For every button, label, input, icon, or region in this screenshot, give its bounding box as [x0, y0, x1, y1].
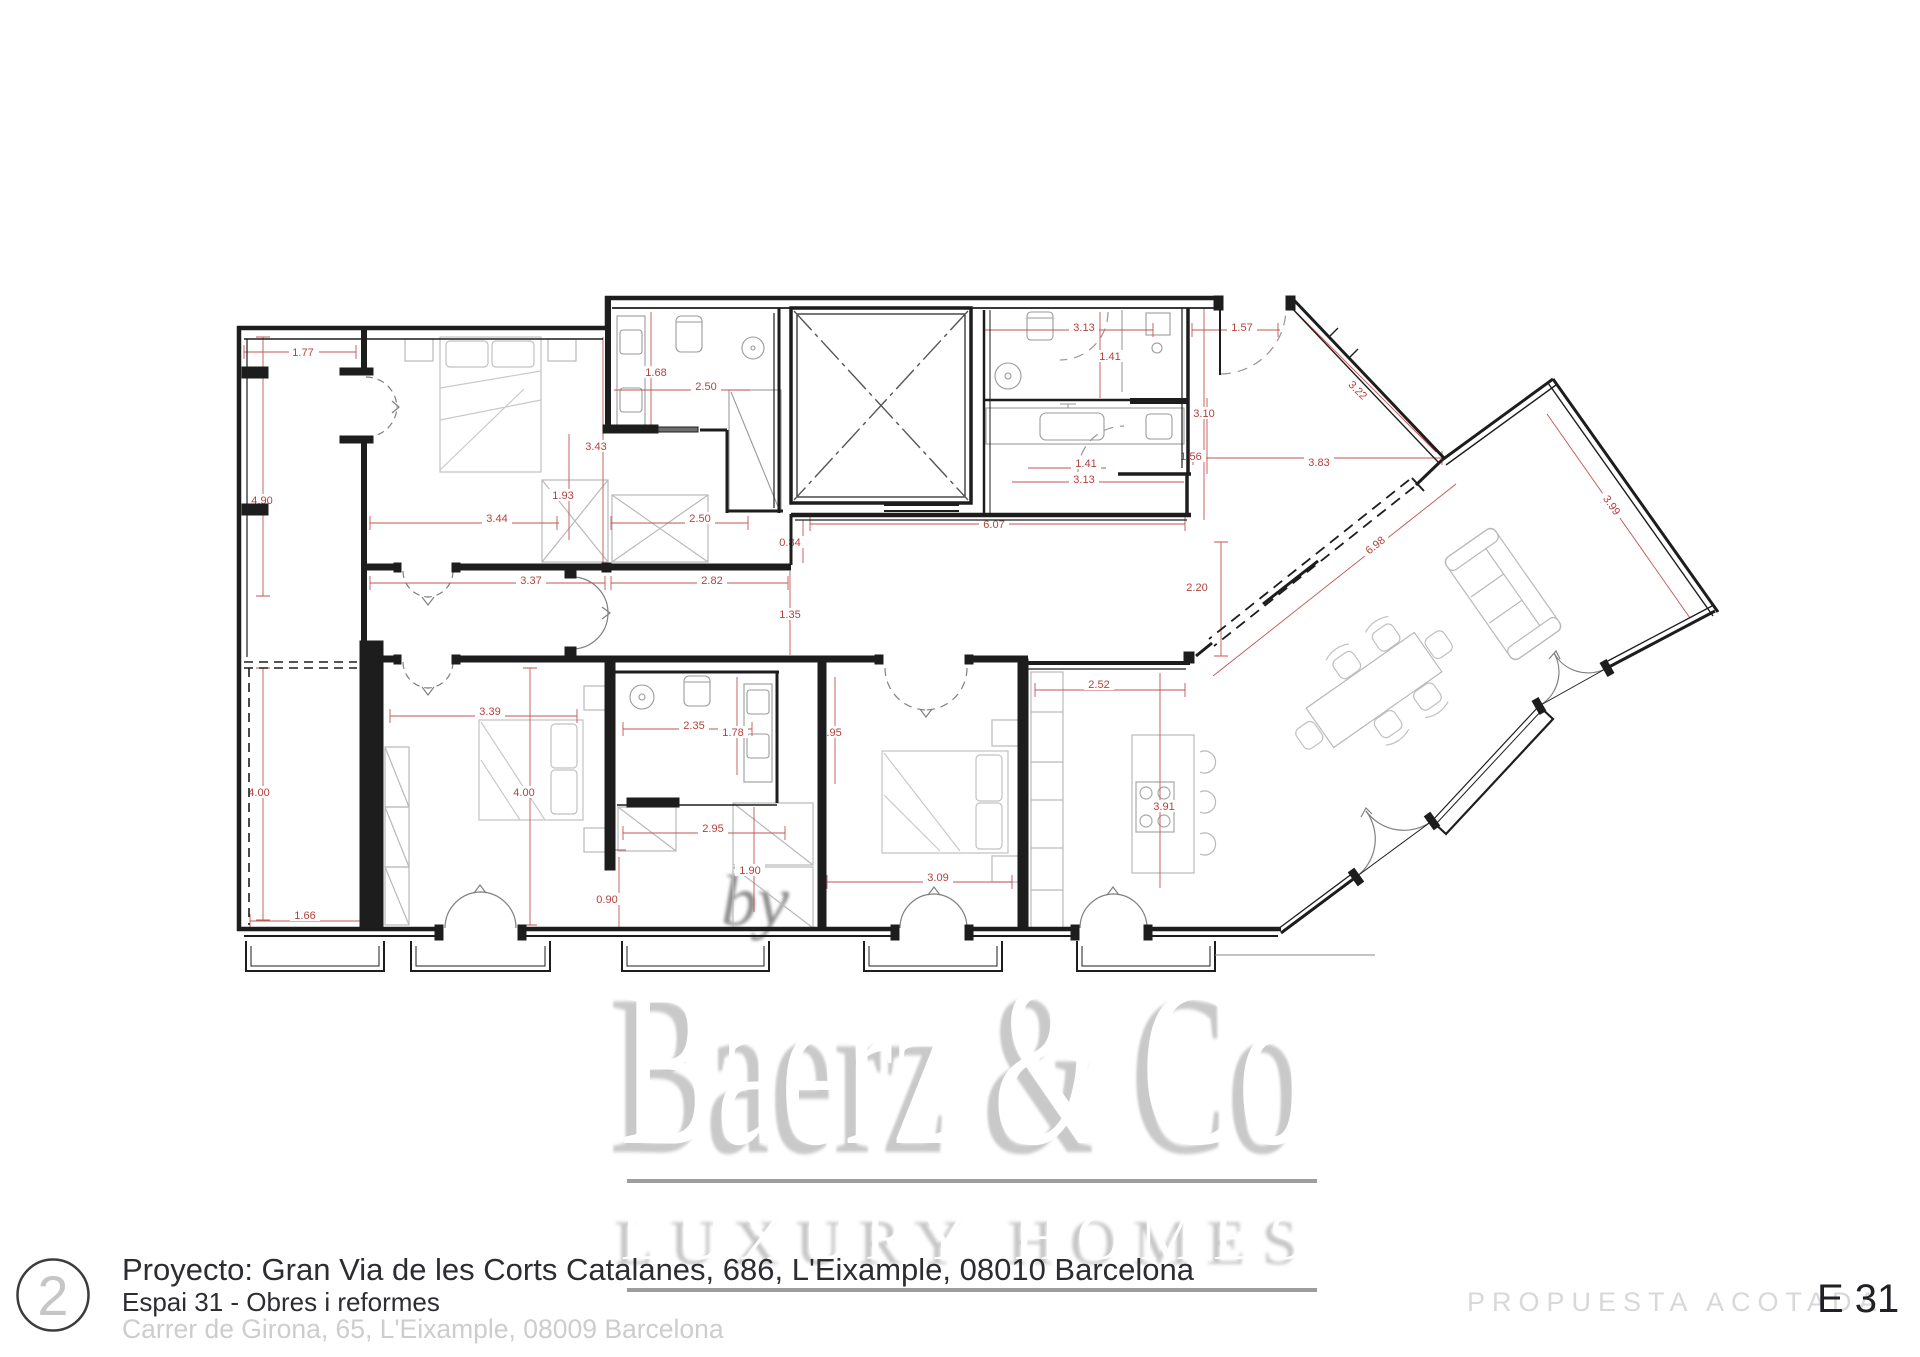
svg-text:Carrer de Girona, 65, L'Eixamp: Carrer de Girona, 65, L'Eixample, 08009 … — [122, 1314, 724, 1344]
svg-text:3.43: 3.43 — [585, 441, 606, 453]
svg-text:6.07: 6.07 — [983, 519, 1004, 531]
svg-text:2.20: 2.20 — [1186, 582, 1207, 594]
svg-text:2.52: 2.52 — [1088, 679, 1109, 691]
svg-text:1.66: 1.66 — [294, 910, 315, 922]
svg-text:2: 2 — [37, 1264, 68, 1327]
svg-text:2.82: 2.82 — [701, 575, 722, 587]
svg-text:0.90: 0.90 — [596, 894, 617, 906]
svg-text:2.50: 2.50 — [695, 381, 716, 393]
svg-text:3.13: 3.13 — [1073, 474, 1094, 486]
svg-text:1.77: 1.77 — [292, 347, 313, 359]
svg-text:3.37: 3.37 — [520, 575, 541, 587]
svg-text:Baerz & Co: Baerz & Co — [620, 938, 1310, 1193]
svg-text:4.00: 4.00 — [248, 787, 269, 799]
svg-text:1.56: 1.56 — [1180, 451, 1201, 463]
svg-text:3.44: 3.44 — [486, 513, 507, 525]
svg-text:3.10: 3.10 — [1193, 408, 1214, 420]
svg-text:1.57: 1.57 — [1231, 322, 1252, 334]
svg-text:Espai 31 - Obres i reformes: Espai 31 - Obres i reformes — [122, 1287, 440, 1317]
svg-text:3.09: 3.09 — [927, 872, 948, 884]
svg-text:3.83: 3.83 — [1308, 457, 1329, 469]
svg-text:3.91: 3.91 — [1153, 801, 1174, 813]
svg-text:1.93: 1.93 — [552, 490, 573, 502]
svg-text:1.41: 1.41 — [1075, 458, 1096, 470]
svg-text:3.13: 3.13 — [1073, 322, 1094, 334]
svg-text:1.78: 1.78 — [722, 727, 743, 739]
svg-text:E 31: E 31 — [1817, 1277, 1899, 1321]
svg-text:1.90: 1.90 — [739, 865, 760, 877]
svg-text:1.68: 1.68 — [645, 367, 666, 379]
svg-text:4.00: 4.00 — [513, 787, 534, 799]
svg-text:1.35: 1.35 — [779, 609, 800, 621]
svg-text:1.41: 1.41 — [1099, 351, 1120, 363]
svg-text:Proyecto: Gran Via de les Cort: Proyecto: Gran Via de les Corts Catalane… — [122, 1252, 1195, 1287]
svg-text:2.35: 2.35 — [683, 720, 704, 732]
svg-text:2.50: 2.50 — [689, 513, 710, 525]
svg-text:3.39: 3.39 — [479, 706, 500, 718]
svg-text:2.95: 2.95 — [702, 823, 723, 835]
